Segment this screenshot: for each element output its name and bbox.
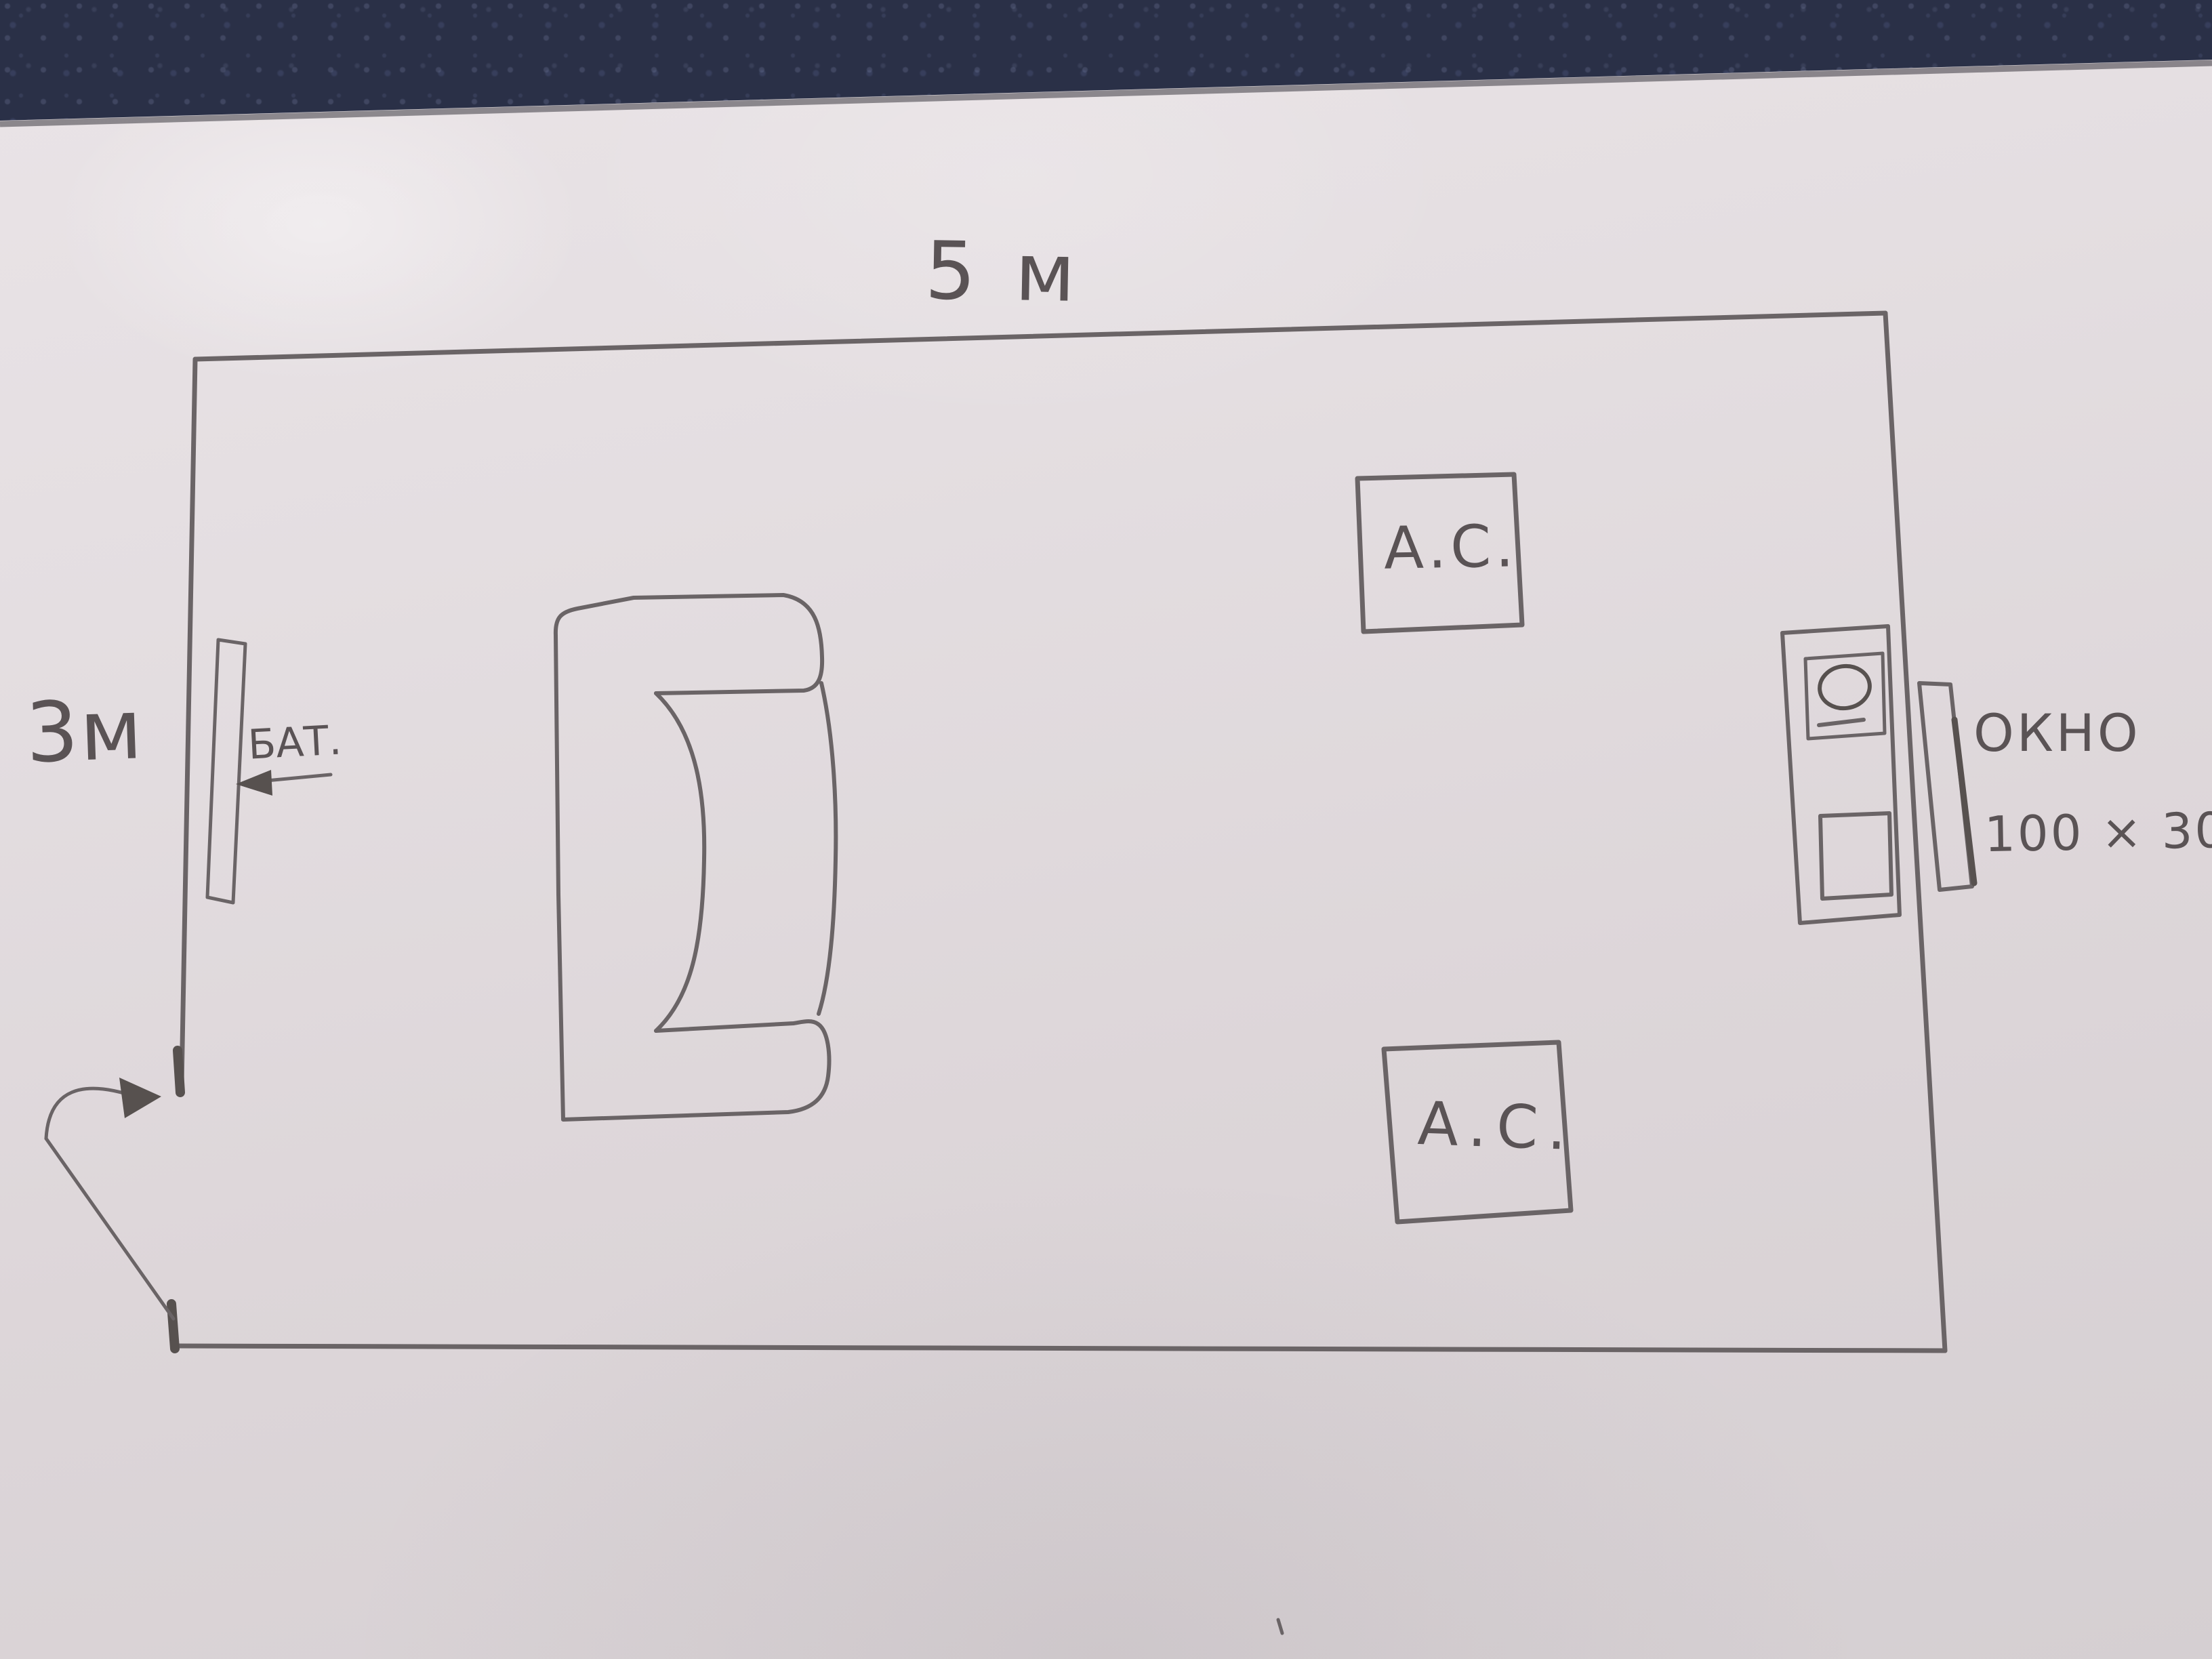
pencil-speck [1278,1620,1282,1633]
tv-stand-lower-shelf [1820,813,1891,899]
window-label: ОКНО [1973,708,2141,759]
photo-of-floor-plan-sketch: { "drawing_title": "Hand-drawn room floo… [0,0,2212,1659]
sofa-right-edge-curve [819,683,836,1014]
window-right-edge-thick [1954,720,1974,883]
radiator-rect [207,640,245,903]
radiator-label: БАТ. [247,720,343,765]
sofa [556,595,836,1120]
sofa-seat-curve [656,693,704,1031]
room-outline [171,313,1945,1351]
radiator-pointer-arrowhead-icon [236,770,272,796]
door-jamb-bottom-tick [171,1304,175,1349]
turntable-circle-icon [1817,663,1872,712]
speaker-top-label: А.С. [1383,517,1518,577]
room-height-label: 3м [24,688,145,775]
door-leaf-line [46,1139,173,1319]
paper-edge-shadow [0,63,2212,124]
pencil-drawing-layer [0,0,2212,1659]
turntable-arm-line [1819,720,1864,725]
top-wall [195,313,1885,359]
tv-stand [1782,626,1900,923]
door-swing [46,1078,173,1319]
radiator [207,640,331,903]
bottom-wall [178,1346,1945,1351]
left-wall [182,359,195,1083]
room-width-label: 5 м [924,230,1083,313]
window [1919,683,1974,890]
door-jamb-top-tick [178,1050,180,1092]
sofa-outline [556,595,829,1120]
window-size-label: 100 × 30 [1984,806,2212,859]
door-arrowhead-icon [119,1078,161,1118]
speaker-bottom-label: А.С. [1417,1094,1578,1159]
